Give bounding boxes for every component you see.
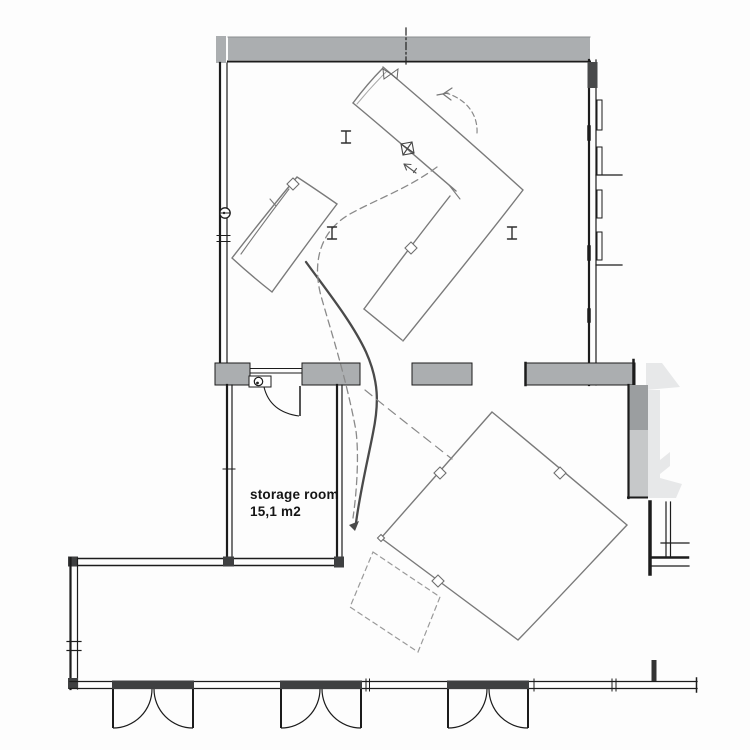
sketch-annotations: [287, 69, 566, 587]
entry-stair-arrow-icon: [646, 363, 680, 390]
wall-fixture: [597, 190, 602, 218]
door-header: [112, 681, 194, 690]
dashed-path-branch: [365, 390, 452, 459]
door-hinge-icon: [254, 377, 262, 385]
top-wall-band: [228, 37, 590, 60]
left-wall-main-room: [217, 63, 230, 363]
right-wall-main-room: [588, 60, 623, 385]
scanned-floor-plan-page: storage room 15,1 m2: [0, 0, 750, 750]
stair-railing: [650, 502, 689, 574]
double-door-swing-icon: [322, 689, 361, 728]
top-wall-left-stub: [216, 36, 226, 63]
wall-joint: [68, 678, 78, 689]
door-header: [280, 681, 362, 690]
i-beam-marker-icon: [342, 131, 351, 143]
diamond-marker-icon: [554, 467, 566, 479]
labels: storage room 15,1 m2: [250, 487, 339, 519]
column-lower: [628, 430, 648, 498]
bed-square-sketch: [350, 412, 627, 652]
double-door-swing-icon: [489, 689, 528, 728]
sketch-furniture: [232, 67, 627, 652]
diamond-marker-icon: [287, 178, 299, 190]
wall-joint: [223, 557, 234, 567]
l-shaped-sofa-sketch: [353, 67, 523, 341]
column: [628, 385, 648, 430]
small-arrow-icon: [404, 164, 417, 173]
i-beam-marker-icon: [508, 227, 517, 239]
door-swing-icon: [264, 387, 299, 416]
facade-double-door-2: [281, 689, 361, 728]
storage-room-area: 15,1 m2: [250, 504, 301, 519]
floor-plan-drawing: storage room 15,1 m2: [0, 0, 750, 750]
mattress-dashed-sketch: [350, 552, 440, 652]
right-stair-and-column: [628, 363, 689, 574]
wall-block: [525, 363, 635, 385]
facade-double-door-3: [448, 689, 528, 728]
i-beam-markers: [328, 131, 517, 239]
wall-post: [652, 660, 657, 681]
door-header: [447, 681, 529, 690]
lower-horizontal-wall: [68, 557, 344, 568]
diamond-marker-icon: [434, 467, 446, 479]
left-sofa-sketch: [232, 177, 337, 292]
wall-block: [215, 363, 250, 385]
wall-joint: [588, 62, 598, 88]
left-outer-wall: [67, 558, 81, 689]
bowtie-marker-icon: [383, 69, 398, 79]
double-door-swing-icon: [113, 689, 152, 728]
wall-block: [412, 363, 472, 385]
doors: [113, 369, 528, 729]
wall-fixture: [597, 232, 602, 260]
top-wall: [216, 28, 590, 66]
facade-double-door-1: [113, 689, 193, 728]
storage-room-label: storage room: [250, 487, 339, 502]
wall-block: [302, 363, 360, 385]
wall-joint: [334, 557, 344, 568]
crossed-box-marker-icon: [401, 142, 414, 155]
wall-fixture: [597, 147, 602, 175]
double-door-swing-icon: [154, 689, 193, 728]
storage-door: [249, 369, 302, 417]
movement-arrow-icon: [349, 521, 359, 531]
dashed-path: [318, 167, 437, 518]
double-door-swing-icon: [281, 689, 320, 728]
wall-fixture: [597, 100, 602, 130]
double-door-swing-icon: [448, 689, 487, 728]
stair-run: [646, 390, 682, 498]
bottom-facade-wall: [70, 660, 697, 692]
